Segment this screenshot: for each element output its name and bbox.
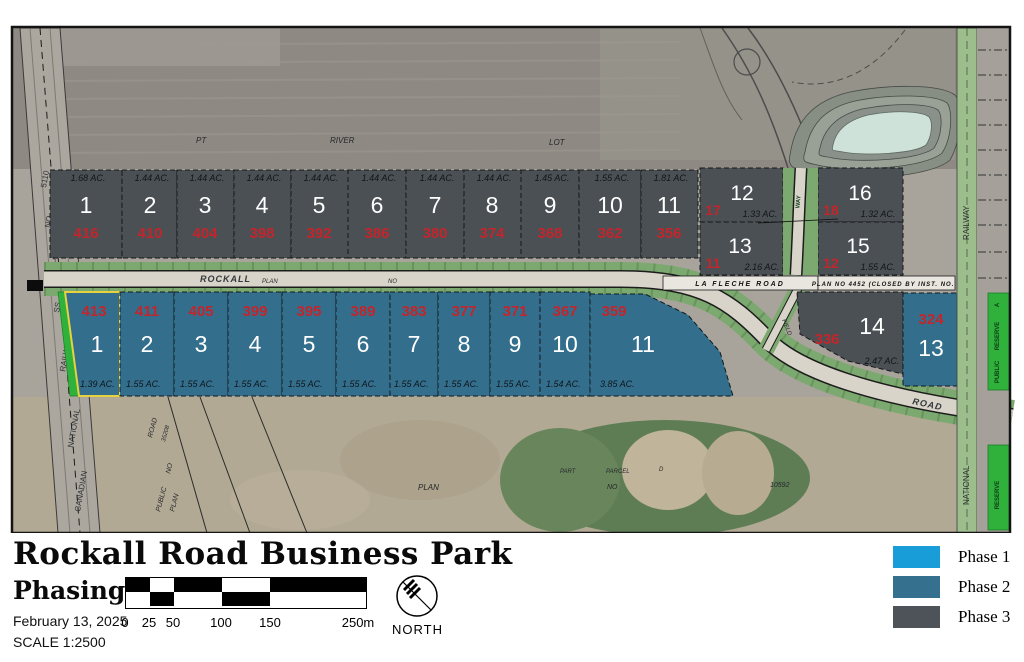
lot-number: 11 — [631, 331, 655, 357]
label-pt: PT — [196, 136, 207, 145]
lot-number: 16 — [848, 182, 871, 205]
lot-address: 368 — [537, 225, 562, 242]
acreage-label: 1.55 AC. — [444, 379, 479, 389]
scale-bar — [125, 577, 367, 609]
lot-number: 11 — [657, 192, 681, 218]
lot-address: 18 — [823, 202, 839, 218]
phase-2-label: Phase 2 — [958, 577, 1010, 597]
lot-number: 3 — [195, 331, 208, 357]
lot-address: 374 — [479, 225, 505, 242]
lot-number: 4 — [256, 192, 269, 218]
lot-address: 377 — [451, 303, 476, 320]
public-label: PUBLIC — [995, 360, 1001, 383]
rail-crossing-marker — [27, 280, 43, 291]
closed-plan-label: PLAN NO 4452 (CLOSED BY INST. NO. ) — [812, 282, 960, 288]
label-parcel: PARCEL — [606, 469, 630, 475]
lot-address: 386 — [364, 225, 389, 242]
acreage-label: 1.45 AC. — [535, 173, 570, 183]
acreage-label: 1.32 AC. — [861, 209, 896, 219]
reserve-a-label: A — [995, 302, 1001, 307]
acreage-label: 1.55 AC. — [394, 379, 429, 389]
reserve-label: RESERVE — [995, 322, 1001, 351]
label-part: PART — [560, 469, 577, 475]
acreage-label: 2.16 AC. — [744, 262, 780, 272]
title-block: Rockall Road Business Park Phasing Febru… — [0, 533, 1024, 662]
way-road-label: WAY — [795, 195, 802, 209]
acreage-label: 1.68 AC. — [71, 173, 106, 183]
lot-address: 367 — [552, 303, 577, 320]
lot-address: 404 — [192, 225, 218, 242]
lot-address: 398 — [249, 225, 274, 242]
lot-number: 10 — [597, 192, 623, 218]
lot-address: 392 — [306, 225, 331, 242]
lot-address: 11 — [706, 255, 721, 271]
label-lot: LOT — [549, 138, 566, 147]
page-title: Rockall Road Business Park — [13, 536, 513, 572]
south-lot-row: 413 411 405 399 395 389 383 377 371 367 … — [58, 292, 733, 396]
acreage-label: 1.55 AC. — [234, 379, 269, 389]
acreage-label: 1.55 AC. — [180, 379, 215, 389]
lot-number: 7 — [429, 192, 442, 218]
lot-number: 8 — [486, 192, 499, 218]
site-plan-map: PT RIVER LOT PLAN PART PARCEL D NO 10592… — [0, 0, 1024, 533]
lot-number: 4 — [249, 331, 262, 357]
lot-number: 5 — [303, 331, 316, 357]
scale-tick: 25 — [142, 615, 156, 630]
scale-tick: 100 — [210, 615, 232, 630]
lot-address: 359 — [601, 303, 626, 320]
acreage-label: 1.44 AC. — [190, 173, 225, 183]
lot-number: 9 — [544, 192, 557, 218]
label-d: D — [659, 467, 664, 473]
rockall-no-label: NO — [388, 279, 397, 285]
scale-tick: 50 — [166, 615, 180, 630]
phase-3-label: Phase 3 — [958, 607, 1010, 627]
scale-label: SCALE 1:2500 — [13, 634, 106, 650]
phase-1-swatch — [893, 546, 940, 568]
label-10592: 10592 — [770, 482, 790, 489]
date-label: February 13, 2025 — [13, 613, 127, 629]
legend-row-phase-3: Phase 3 — [893, 606, 1024, 628]
legend-row-phase-1: Phase 1 — [893, 546, 1024, 568]
acreage-label: 1.44 AC. — [247, 173, 282, 183]
acreage-label: 1.33 AC. — [743, 209, 778, 219]
lot-address: 405 — [188, 303, 213, 320]
phase-2-swatch — [893, 576, 940, 598]
lot-address: 324 — [918, 311, 944, 328]
acreage-label: 1.55 AC. — [861, 262, 896, 272]
lot-address: 411 — [135, 303, 159, 320]
rail-east-railway-label: RAILWAY — [962, 205, 971, 240]
east-lot-block: WAY 12 17 1.33 AC. 13 11 2.16 AC. 16 18 … — [700, 168, 903, 275]
acreage-label: 1.55 AC. — [342, 379, 377, 389]
north-label: NORTH — [392, 622, 442, 637]
lot-address: 380 — [422, 225, 447, 242]
lot-number: 2 — [144, 192, 157, 218]
north-arrow: NORTH — [392, 573, 442, 635]
acreage-label: 1.44 AC. — [420, 173, 455, 183]
lot-number: 5 — [313, 192, 326, 218]
rail-east-national-label: NATIONAL — [962, 465, 971, 505]
phase-1-label: Phase 1 — [958, 547, 1010, 567]
la-fleche-road-band: LA FLECHE ROAD PLAN NO 4452 (CLOSED BY I… — [663, 276, 960, 290]
acreage-label: 1.55 AC. — [126, 379, 161, 389]
railway-corridor-east: RAILWAY NATIONAL A RESERVE PUBLIC RESERV… — [957, 28, 1010, 533]
lot-number: 13 — [918, 335, 944, 361]
lot-number: 7 — [408, 331, 421, 357]
lot-number: 10 — [552, 331, 578, 357]
lot-number: 13 — [728, 235, 751, 258]
acreage-label: 1.81 AC. — [654, 173, 689, 183]
lot-address: 389 — [350, 303, 375, 320]
lot-number: 14 — [859, 313, 885, 339]
lot-address: 383 — [401, 303, 426, 320]
lot-number: 15 — [846, 235, 869, 258]
acreage-label: 1.44 AC. — [362, 173, 397, 183]
label-river: RIVER — [330, 136, 355, 145]
reserve2-label: RESERVE — [995, 481, 1001, 510]
lot-address: 362 — [597, 225, 622, 242]
acreage-label: 1.44 AC. — [477, 173, 512, 183]
lot-address: 413 — [81, 303, 106, 320]
lot-address: 399 — [242, 303, 267, 320]
phase-3-swatch — [893, 606, 940, 628]
lot-address: 395 — [296, 303, 321, 320]
legend-row-phase-2: Phase 2 — [893, 576, 1024, 598]
lot-number: 3 — [199, 192, 212, 218]
acreage-label: 3.85 AC. — [600, 379, 635, 389]
acreage-label: 1.54 AC. — [546, 379, 581, 389]
acreage-label: 1.55 AC. — [595, 173, 630, 183]
la-fleche-road-label: LA FLECHE ROAD — [695, 281, 785, 288]
lot-address: 336 — [814, 331, 839, 348]
lot-number: 1 — [80, 192, 93, 218]
lot-address: 12 — [823, 255, 839, 271]
scale-tick: 150 — [259, 615, 281, 630]
lot-number: 9 — [509, 331, 522, 357]
plan-sheet: { "map": { "top_lots": [ {"num":"1","red… — [0, 0, 1024, 662]
rockall-label: ROCKALL — [200, 274, 251, 284]
rockall-plan-label: PLAN — [262, 279, 278, 285]
lot-address: 356 — [656, 225, 681, 242]
page-subtitle: Phasing — [13, 576, 125, 605]
lot-address: 371 — [502, 303, 527, 320]
lot-number: 6 — [371, 192, 384, 218]
acreage-label: 1.44 AC. — [304, 173, 339, 183]
acreage-label: 1.44 AC. — [135, 173, 170, 183]
acreage-label: 1.55 AC. — [496, 379, 531, 389]
lot-address: 410 — [137, 225, 162, 242]
lot-number: 8 — [458, 331, 471, 357]
acreage-label: 2.47 AC. — [864, 356, 900, 366]
acreage-label: 1.39 AC. — [80, 379, 115, 389]
label-plan: PLAN — [418, 483, 439, 492]
lot-address: 416 — [73, 225, 98, 242]
lot-number: 12 — [730, 182, 753, 205]
lot-number: 1 — [91, 331, 104, 357]
acreage-label: 1.55 AC. — [288, 379, 323, 389]
label-no: NO — [607, 484, 618, 491]
scale-tick: 250m — [342, 615, 375, 630]
top-lot-row: 1.68 AC. 1.44 AC. 1.44 AC. 1.44 AC. 1.44… — [50, 170, 698, 258]
lot-address: 17 — [705, 202, 721, 218]
lot-number: 6 — [357, 331, 370, 357]
scale-tick: 0 — [121, 615, 128, 630]
north-arrow-icon — [392, 573, 442, 621]
lot-number: 2 — [141, 331, 154, 357]
